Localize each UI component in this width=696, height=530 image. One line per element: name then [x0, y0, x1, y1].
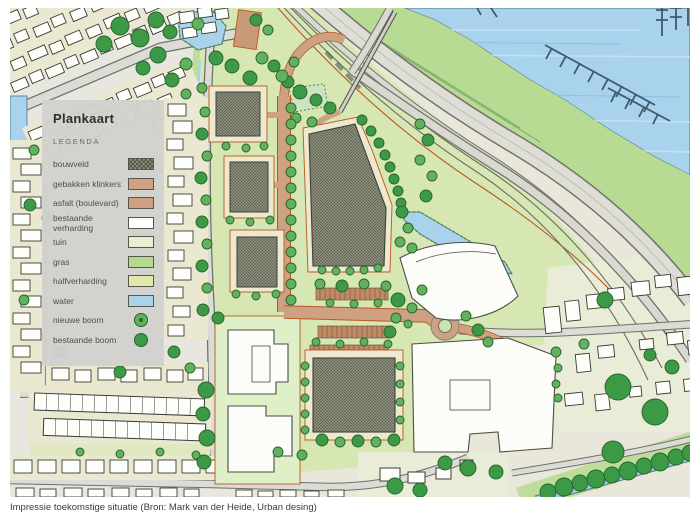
building-block-2 [230, 162, 268, 212]
gras-swatch [128, 256, 154, 268]
legend-panel: Plankaart LEGENDA bouwveld gebakken klin… [42, 100, 164, 366]
gebakken-klinkers-swatch [128, 178, 154, 190]
nieuwe-boom-swatch [134, 313, 148, 327]
legend-item-bestaande-boom: bestaande boom [53, 330, 154, 350]
legend-subtitle: LEGENDA [53, 137, 154, 146]
figure-caption: Impressie toekomstige situatie (Bron: Ma… [10, 502, 317, 513]
legend-item-nieuwe-boom: nieuwe boom [53, 311, 154, 331]
asfalt-swatch [128, 197, 154, 209]
halfverharding-swatch [128, 275, 154, 287]
water-swatch [128, 295, 154, 307]
legend-item-tuin: tuin [53, 233, 154, 253]
building-block-1 [216, 92, 260, 136]
bestaande-verharding-swatch [128, 217, 154, 229]
building-block-south [313, 358, 395, 432]
legend-item-asfalt: asfalt (boulevard) [53, 194, 154, 214]
bouwveld-swatch [128, 158, 154, 170]
legend-item-water: water [53, 291, 154, 311]
legend-item-gebakken-klinkers: gebakken klinkers [53, 174, 154, 194]
legend-title: Plankaart [53, 111, 154, 127]
bestaande-boom-swatch [134, 333, 148, 347]
legend-item-bouwveld: bouwveld [53, 155, 154, 175]
terraced-houses [27, 385, 213, 449]
tuin-swatch [128, 236, 154, 248]
building-block-3 [237, 237, 277, 287]
legend-item-gras: gras [53, 252, 154, 272]
legend-item-bestaande-verharding: bestaande verharding [53, 213, 154, 233]
plan-page: Plankaart LEGENDA bouwveld gebakken klin… [0, 0, 696, 530]
legend-item-halfverharding: halfverharding [53, 272, 154, 292]
